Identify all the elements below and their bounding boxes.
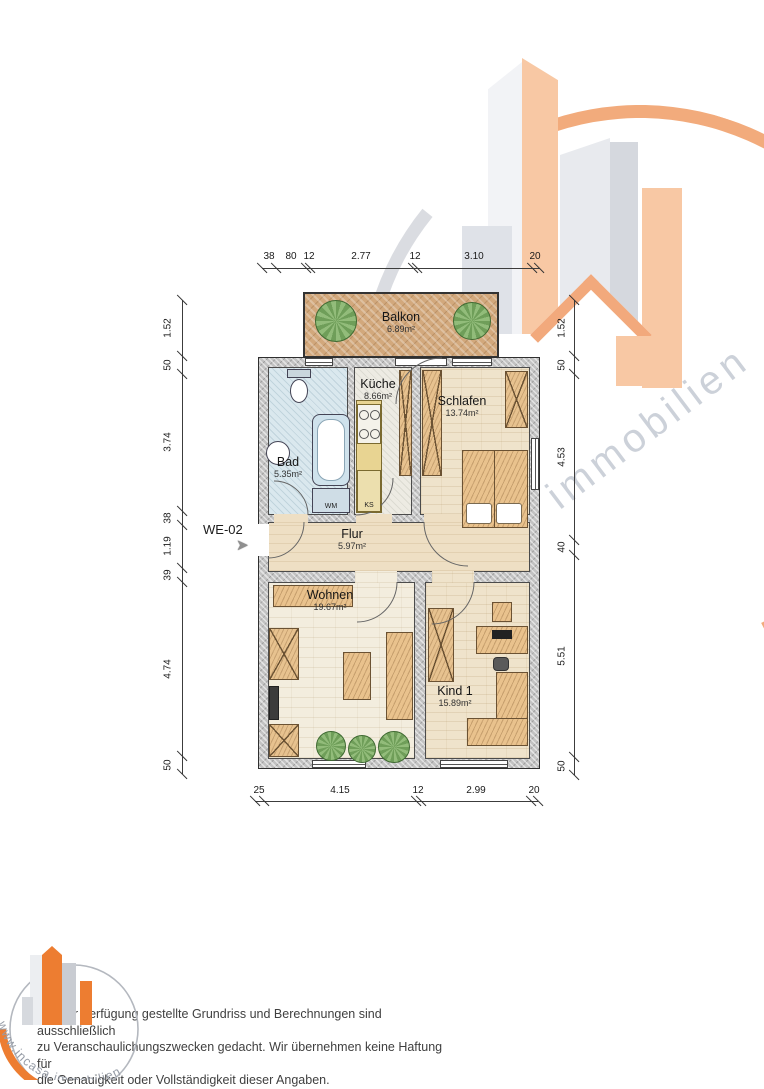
- room-name: Kind 1: [415, 684, 495, 698]
- room-label-bad: Bad 5.35m²: [258, 455, 318, 479]
- room-area: 8.66m²: [348, 391, 408, 401]
- room-name: Bad: [258, 455, 318, 469]
- burner-icon: [359, 429, 369, 439]
- washing-machine-label: WM: [325, 503, 337, 510]
- dim-label: 50: [163, 759, 174, 770]
- washing-machine: WM: [312, 488, 350, 513]
- door-arc: [268, 522, 304, 558]
- unit-label: WE-02: [203, 522, 243, 537]
- plant-icon: [348, 735, 376, 763]
- watermark-building-face: [616, 336, 654, 386]
- room-name: Flur: [312, 527, 392, 541]
- dim-label: 4.74: [163, 659, 174, 678]
- fridge: KS: [357, 470, 381, 512]
- room-area: 13.74m²: [422, 408, 502, 418]
- dim-label: 80: [285, 251, 296, 262]
- dim-line-left: [182, 300, 183, 774]
- dim-label: 1.52: [557, 318, 568, 337]
- dim-label: 38: [263, 251, 274, 262]
- dim-label: 50: [557, 760, 568, 771]
- door-swing-arcs: [250, 350, 550, 780]
- burner-icon: [370, 410, 380, 420]
- dim-label: 3.10: [464, 251, 483, 262]
- dim-label: 1.19: [163, 536, 174, 555]
- dim-line-right: [574, 300, 575, 775]
- room-label-kind1: Kind 1 15.89m²: [415, 684, 495, 708]
- dim-label: 38: [163, 512, 174, 523]
- dim-label: 12: [409, 251, 420, 262]
- room-area: 5.97m²: [312, 541, 392, 551]
- room-name: Wohnen: [285, 588, 375, 602]
- dim-line-top: [262, 268, 540, 269]
- room-label-balkon: Balkon 6.89m²: [351, 310, 451, 334]
- dim-label: 12: [303, 251, 314, 262]
- room-name: Balkon: [351, 310, 451, 324]
- dim-line-bottom: [255, 801, 538, 802]
- room-area: 6.89m²: [351, 324, 451, 334]
- room-area: 5.35m²: [258, 469, 318, 479]
- dim-label: 50: [163, 359, 174, 370]
- pillow: [496, 503, 522, 524]
- dim-label: 20: [528, 785, 539, 796]
- dim-label: 20: [529, 251, 540, 262]
- door-arc: [274, 481, 308, 515]
- room-label-flur: Flur 5.97m²: [312, 527, 392, 551]
- dim-label: 39: [163, 569, 174, 580]
- bed-seam: [494, 451, 495, 527]
- door-arc: [432, 582, 474, 624]
- plant-icon: [453, 302, 491, 340]
- room-area: 15.89m²: [415, 698, 495, 708]
- dim-label: 2.77: [351, 251, 370, 262]
- room-label-wohnen: Wohnen 19.67m²: [285, 588, 375, 612]
- dim-label: 1.52: [163, 318, 174, 337]
- dim-label: 50: [557, 359, 568, 370]
- watermark-building-face: [522, 58, 558, 334]
- bathtub-inner: [317, 419, 345, 481]
- logo-building: [42, 946, 62, 1025]
- room-label-schlafen: Schlafen 13.74m²: [422, 394, 502, 418]
- laptop: [492, 630, 512, 639]
- room-name: Schlafen: [422, 394, 502, 408]
- dim-label: 2.99: [466, 785, 485, 796]
- dim-label: 3.74: [163, 432, 174, 451]
- company-logo: www.incasa.immobilien: [0, 933, 164, 1080]
- pillow: [466, 503, 492, 524]
- door-arc: [424, 522, 468, 566]
- dim-label: 4.53: [557, 447, 568, 466]
- room-label-kueche: Küche 8.66m²: [348, 377, 408, 401]
- room-area: 19.67m²: [285, 602, 375, 612]
- logo-building: [80, 981, 92, 1025]
- logo-building: [62, 963, 76, 1025]
- dim-label: 40: [557, 541, 568, 552]
- desk-chair: [493, 657, 509, 671]
- plant-icon: [316, 731, 346, 761]
- stove: [357, 404, 381, 444]
- room-name: Küche: [348, 377, 408, 391]
- dim-label: 12: [412, 785, 423, 796]
- burner-icon: [370, 429, 380, 439]
- plant-icon: [378, 731, 410, 763]
- logo-building: [22, 997, 33, 1025]
- dim-label: 5.51: [557, 646, 568, 665]
- burner-icon: [359, 410, 369, 420]
- dim-label: 4.15: [330, 785, 349, 796]
- fridge-label: KS: [364, 502, 373, 509]
- floorplan-page: { "plan": { "unit_label": "WE-02", "room…: [0, 0, 764, 1080]
- entrance-arrow-icon: ➤: [236, 536, 249, 554]
